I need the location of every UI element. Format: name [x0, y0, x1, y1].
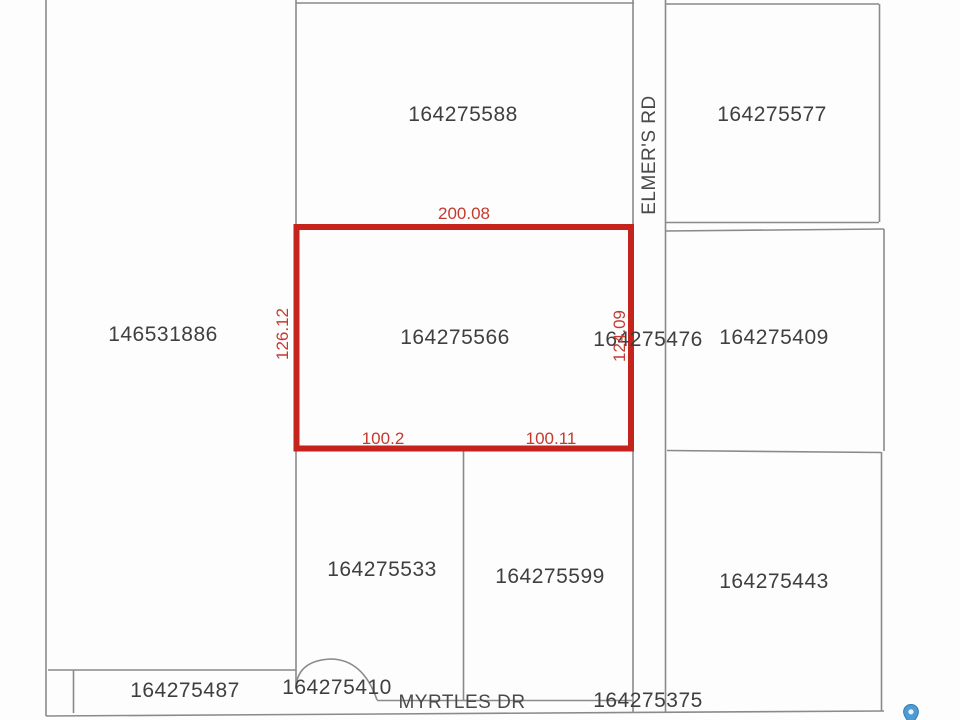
parcel-label-164275588: 164275588	[408, 103, 518, 127]
parcel-label-164275599: 164275599	[495, 565, 605, 589]
parcel-label-164275487: 164275487	[130, 679, 240, 703]
dimension-label-bottom-left: 100.2	[362, 429, 405, 449]
map-pin-icon[interactable]	[904, 705, 919, 720]
dimension-label-bottom-right: 100.11	[526, 429, 577, 449]
dimension-label-left: 126.12	[273, 308, 293, 360]
parcel-label-164275577: 164275577	[717, 103, 827, 127]
parcel-label-164275410: 164275410	[282, 676, 392, 700]
parcel-label-164275409: 164275409	[719, 326, 829, 350]
dimension-label-top: 200.08	[438, 204, 490, 224]
parcel-map-canvas[interactable]: 146531886 164275588 164275577 164275566 …	[0, 0, 960, 720]
road-label-elmers-rd: ELMER'S RD	[639, 95, 661, 214]
parcel-label-164275533: 164275533	[327, 558, 437, 582]
dimension-label-right: 124.09	[610, 310, 630, 362]
parcel-label-164275375: 164275375	[593, 689, 703, 713]
road-label-myrtles-dr: MYRTLES DR	[398, 692, 525, 714]
parcel-label-164275566: 164275566	[400, 326, 510, 350]
parcel-label-164275443: 164275443	[719, 570, 829, 594]
parcel-label-146531886: 146531886	[108, 323, 218, 347]
